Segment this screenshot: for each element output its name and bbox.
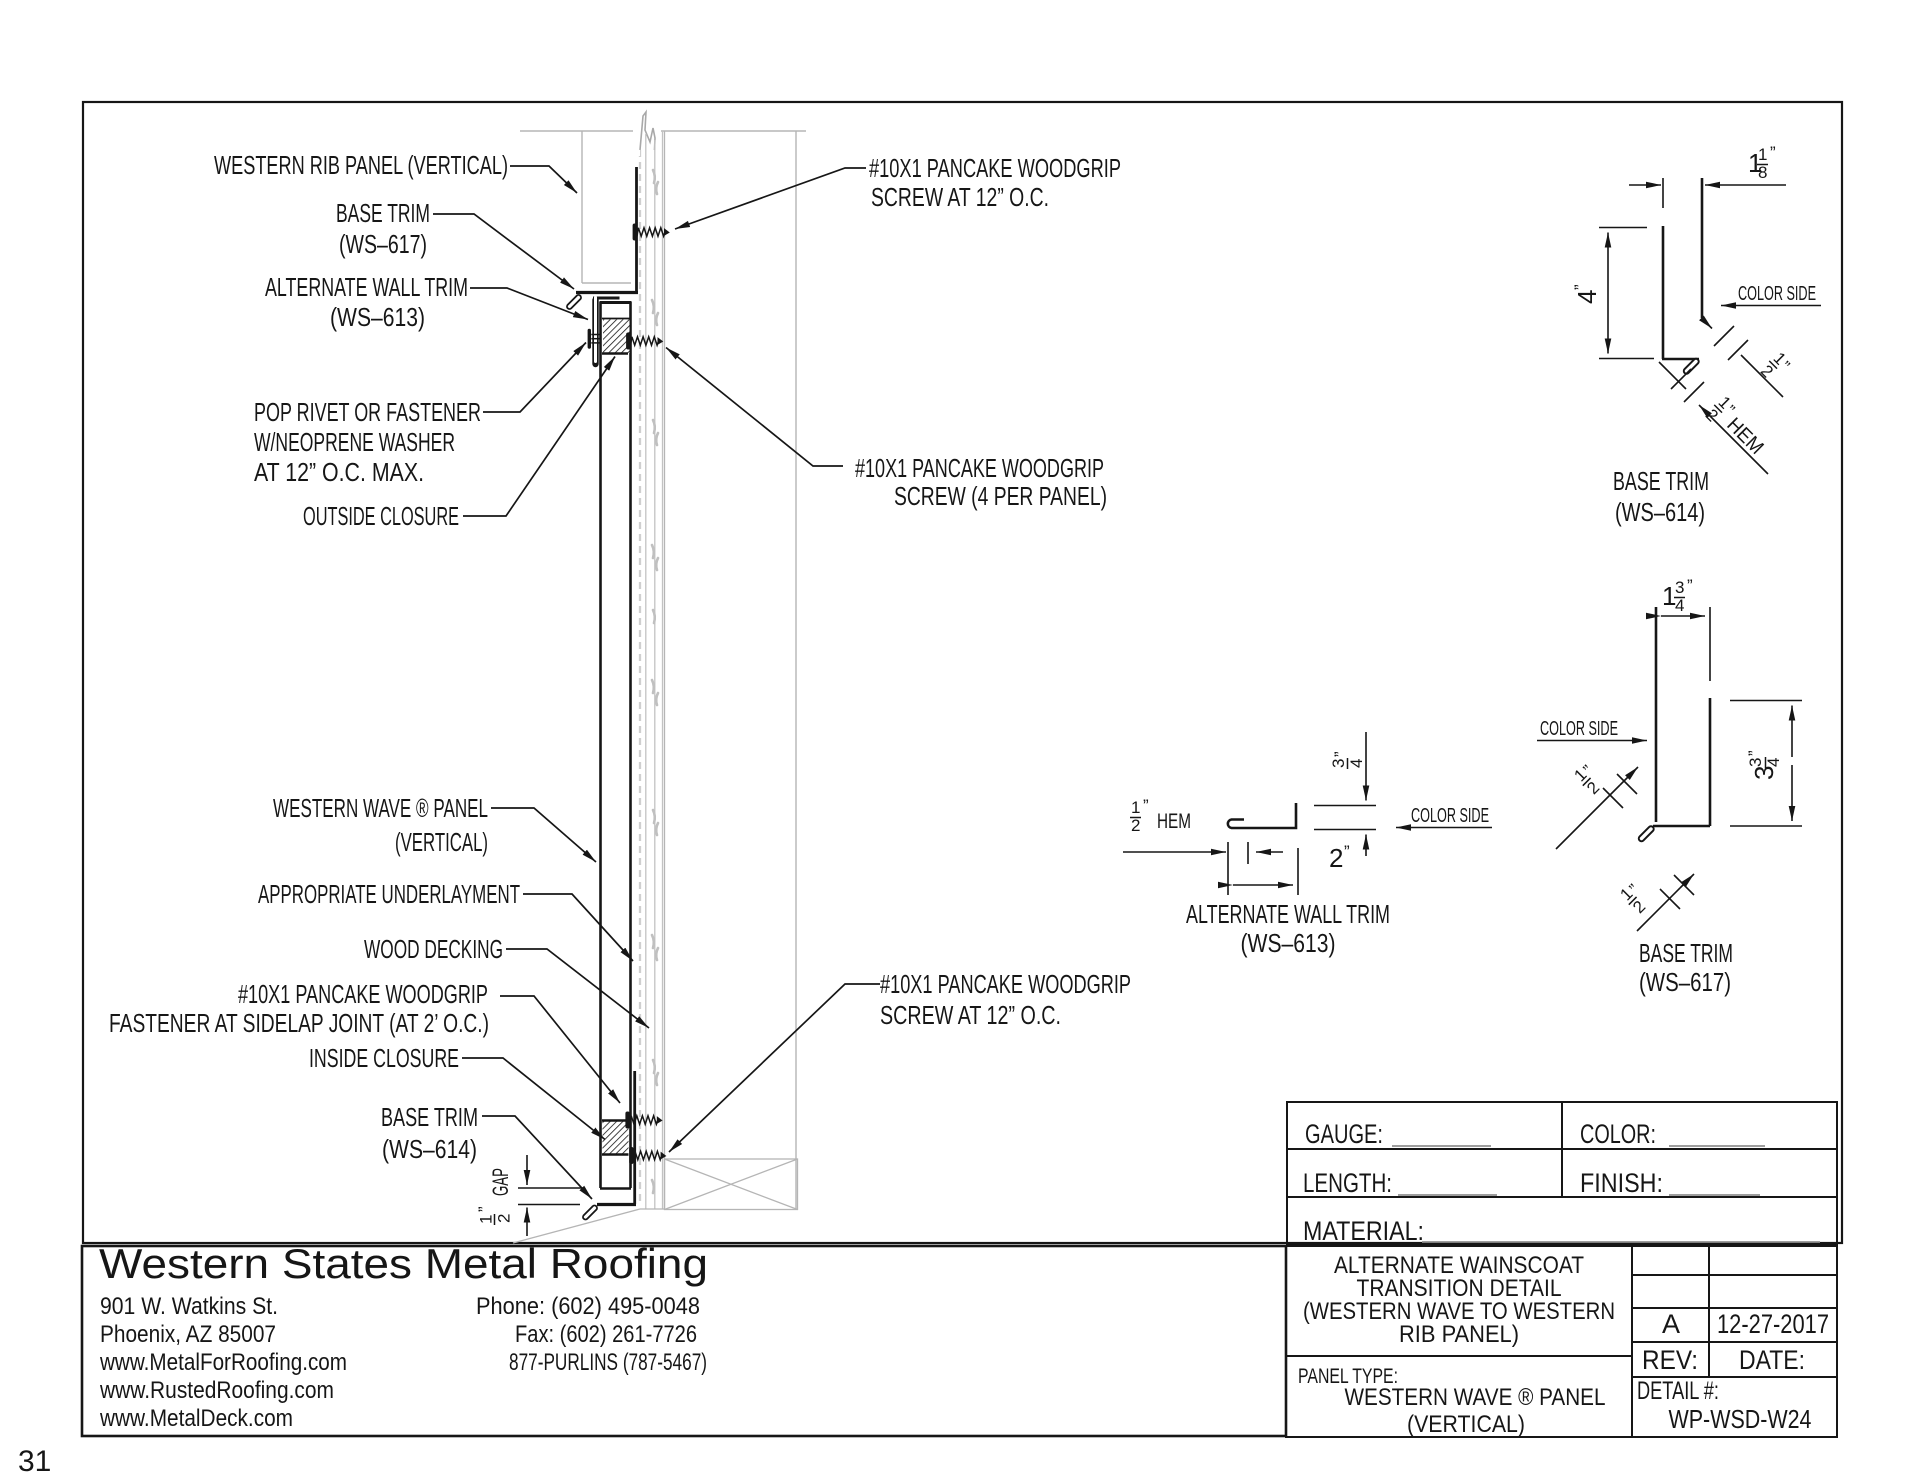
svg-text:”: ” [1331, 751, 1350, 757]
svg-text:31: 31 [18, 1445, 51, 1478]
svg-text:Phone: (602) 495-0048: Phone: (602) 495-0048 [476, 1293, 700, 1320]
svg-text:WESTERN WAVE ® PANEL: WESTERN WAVE ® PANEL [1345, 1384, 1606, 1411]
svg-text:(VERTICAL): (VERTICAL) [395, 827, 488, 857]
svg-text:SCREW (4 PER PANEL): SCREW (4 PER PANEL) [894, 481, 1107, 511]
svg-text:ALTERNATE WALL TRIM: ALTERNATE WALL TRIM [1186, 899, 1390, 929]
svg-text:3: 3 [1746, 758, 1765, 767]
svg-text:(WS–614): (WS–614) [1615, 497, 1705, 527]
svg-text:WP-WSD-W24: WP-WSD-W24 [1669, 1404, 1812, 1434]
svg-text:2: 2 [1131, 816, 1140, 835]
svg-text:(WS–617): (WS–617) [339, 229, 427, 259]
svg-text:3: 3 [1329, 759, 1348, 768]
svg-text:(WS–614): (WS–614) [382, 1134, 477, 1164]
svg-text:ALTERNATE WALL TRIM: ALTERNATE WALL TRIM [265, 272, 468, 302]
svg-text:#10X1 PANCAKE WOODGRIP: #10X1 PANCAKE WOODGRIP [880, 969, 1131, 999]
svg-text:PANEL TYPE:: PANEL TYPE: [1298, 1365, 1398, 1388]
svg-text:#10X1 PANCAKE WOODGRIP: #10X1 PANCAKE WOODGRIP [855, 453, 1104, 483]
svg-text:A: A [1662, 1309, 1680, 1339]
svg-text:1: 1 [1758, 145, 1767, 164]
svg-text:POP RIVET OR FASTENER: POP RIVET OR FASTENER [254, 397, 481, 427]
svg-text:GAP: GAP [488, 1168, 513, 1196]
svg-text:(VERTICAL): (VERTICAL) [1407, 1411, 1525, 1438]
svg-text:”: ” [475, 1206, 494, 1212]
svg-text:”: ” [1571, 284, 1590, 290]
svg-text:2: 2 [1329, 843, 1343, 873]
svg-text:WESTERN WAVE ® PANEL: WESTERN WAVE ® PANEL [273, 793, 488, 823]
svg-text:”: ” [1770, 143, 1776, 162]
svg-text:901 W. Watkins St.: 901 W. Watkins St. [100, 1293, 278, 1320]
svg-text:www.MetalForRoofing.com: www.MetalForRoofing.com [99, 1349, 347, 1376]
svg-text:877-PURLINS (787-5467): 877-PURLINS (787-5467) [509, 1349, 707, 1376]
svg-text:”: ” [1143, 796, 1149, 815]
svg-text:”: ” [1344, 842, 1350, 861]
svg-text:2: 2 [495, 1214, 514, 1223]
svg-text:BASE TRIM: BASE TRIM [1639, 938, 1733, 968]
svg-text:4: 4 [1347, 759, 1366, 768]
svg-text:SCREW AT 12” O.C.: SCREW AT 12” O.C. [880, 1000, 1061, 1030]
svg-text:BASE TRIM: BASE TRIM [1613, 466, 1709, 496]
svg-text:#10X1 PANCAKE WOODGRIP: #10X1 PANCAKE WOODGRIP [869, 153, 1121, 183]
svg-text:RIB PANEL): RIB PANEL) [1399, 1321, 1519, 1348]
svg-text:INSIDE CLOSURE: INSIDE CLOSURE [309, 1043, 459, 1073]
svg-text:”: ” [1687, 576, 1693, 595]
svg-text:4: 4 [1675, 596, 1684, 615]
svg-text:1: 1 [477, 1215, 496, 1224]
svg-text:WOOD DECKING: WOOD DECKING [364, 934, 503, 964]
svg-text:www.RustedRoofing.com: www.RustedRoofing.com [99, 1377, 334, 1404]
svg-text:3: 3 [1675, 578, 1684, 597]
svg-text:APPROPRIATE UNDERLAYMENT: APPROPRIATE UNDERLAYMENT [258, 879, 520, 909]
svg-text:DATE:: DATE: [1739, 1345, 1805, 1375]
svg-text:1: 1 [1131, 798, 1140, 817]
svg-text:BASE TRIM: BASE TRIM [381, 1102, 478, 1132]
svg-text:12-27-2017: 12-27-2017 [1717, 1309, 1829, 1339]
svg-text:W/NEOPRENE WASHER: W/NEOPRENE WASHER [254, 427, 455, 457]
svg-text:GAUGE:: GAUGE: [1305, 1119, 1383, 1149]
svg-text:HEM: HEM [1157, 810, 1191, 833]
svg-text:#10X1 PANCAKE WOODGRIP: #10X1 PANCAKE WOODGRIP [238, 979, 488, 1009]
svg-text:(WS–613): (WS–613) [1241, 928, 1336, 958]
svg-text:4: 4 [1572, 290, 1602, 304]
svg-text:Phoenix, AZ 85007: Phoenix, AZ 85007 [100, 1321, 276, 1348]
svg-text:www.MetalDeck.com: www.MetalDeck.com [99, 1405, 293, 1432]
svg-text:BASE TRIM: BASE TRIM [336, 198, 430, 228]
svg-text:AT 12” O.C. MAX.: AT 12” O.C. MAX. [254, 457, 424, 487]
svg-text:(WS–613): (WS–613) [330, 302, 425, 332]
svg-text:COLOR SIDE: COLOR SIDE [1540, 718, 1618, 740]
svg-text:Western States Metal Roofing: Western States Metal Roofing [99, 1240, 708, 1287]
svg-text:DETAIL #:: DETAIL #: [1637, 1377, 1719, 1405]
svg-text:FINISH:: FINISH: [1580, 1168, 1663, 1198]
svg-text:8: 8 [1758, 163, 1767, 182]
svg-text:FASTENER AT SIDELAP JOINT (AT: FASTENER AT SIDELAP JOINT (AT 2’ O.C.) [109, 1008, 489, 1038]
svg-text:COLOR SIDE: COLOR SIDE [1411, 805, 1489, 827]
svg-text:OUTSIDE CLOSURE: OUTSIDE CLOSURE [303, 501, 459, 531]
svg-text:COLOR:: COLOR: [1580, 1119, 1656, 1149]
svg-text:WESTERN RIB PANEL (VERTICAL): WESTERN RIB PANEL (VERTICAL) [214, 150, 508, 180]
svg-text:MATERIAL:: MATERIAL: [1303, 1216, 1424, 1246]
svg-text:(WS–617): (WS–617) [1639, 967, 1731, 997]
svg-text:COLOR SIDE: COLOR SIDE [1738, 283, 1816, 305]
svg-text:4: 4 [1764, 758, 1783, 767]
svg-text:LENGTH:: LENGTH: [1303, 1168, 1392, 1198]
svg-text:”: ” [1745, 750, 1764, 756]
svg-text:SCREW AT 12” O.C.: SCREW AT 12” O.C. [871, 182, 1049, 212]
svg-text:REV:: REV: [1642, 1345, 1698, 1375]
svg-text:Fax: (602) 261-7726: Fax: (602) 261-7726 [515, 1321, 697, 1348]
